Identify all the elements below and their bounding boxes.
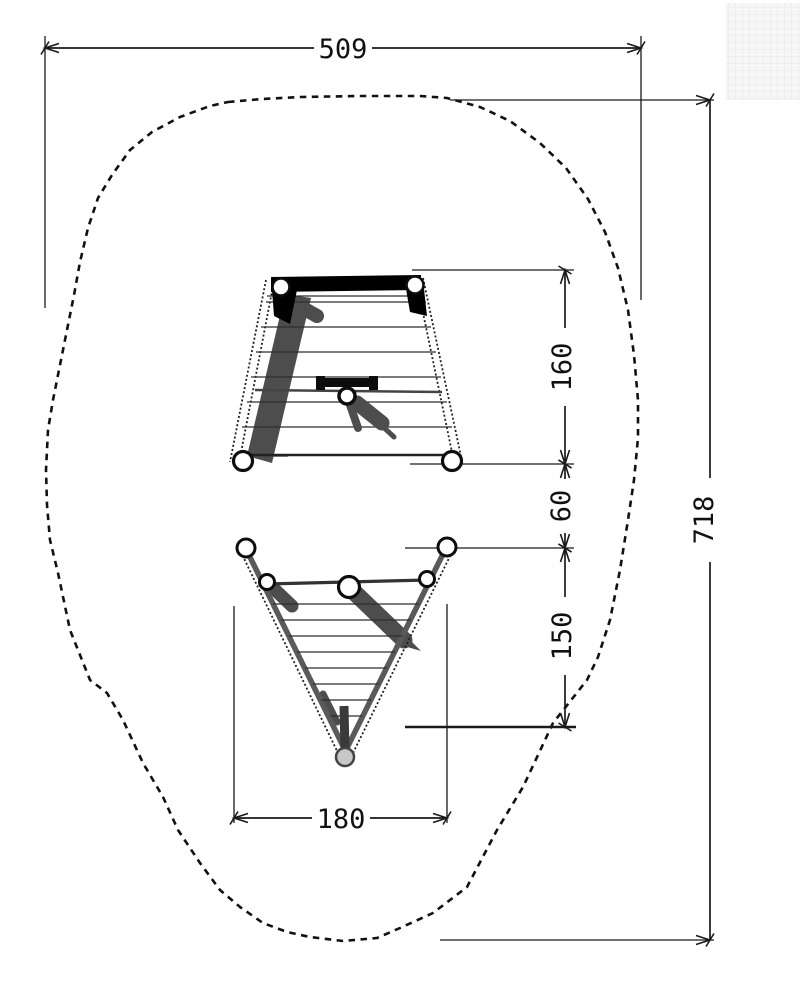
center-clamp (369, 376, 378, 390)
dimension-label: 150 (547, 612, 578, 661)
net-post (273, 279, 290, 296)
dimension-718: 718 (440, 94, 720, 947)
net-shadow (354, 592, 404, 640)
dimension-label: 718 (689, 496, 720, 545)
net-post (443, 452, 462, 471)
upper-net (230, 270, 574, 471)
net-post (339, 577, 360, 598)
net-post (234, 452, 253, 471)
center-clamp (320, 378, 374, 387)
net-arm-right (352, 544, 456, 755)
dimension-label: 160 (547, 343, 578, 392)
net-post (420, 572, 435, 587)
bottom-post-cap (336, 748, 354, 766)
center-clamp (316, 376, 325, 390)
net-rail-right (423, 278, 462, 461)
net-post (237, 539, 255, 557)
dimension-label: 180 (317, 804, 366, 835)
dimension-509: 509 (41, 33, 645, 308)
grid-patch (726, 3, 800, 100)
drawing-canvas: 509 718 160 60 150 (0, 0, 800, 988)
bottom-post (344, 706, 345, 752)
clamp-ring (339, 388, 355, 404)
dimension-label: 60 (546, 490, 577, 523)
net-arm-left (237, 544, 339, 755)
net-post (438, 538, 456, 556)
technical-drawing: 509 718 160 60 150 (0, 0, 800, 988)
clamp-shadow (357, 403, 382, 423)
net-post (407, 277, 424, 294)
dimension-label: 509 (319, 34, 368, 65)
lower-net (237, 538, 576, 766)
net-post (260, 575, 275, 590)
net-shadow (247, 294, 311, 463)
dimension-160-60-150: 160 60 150 (546, 266, 579, 731)
net-top-beam (271, 275, 421, 292)
